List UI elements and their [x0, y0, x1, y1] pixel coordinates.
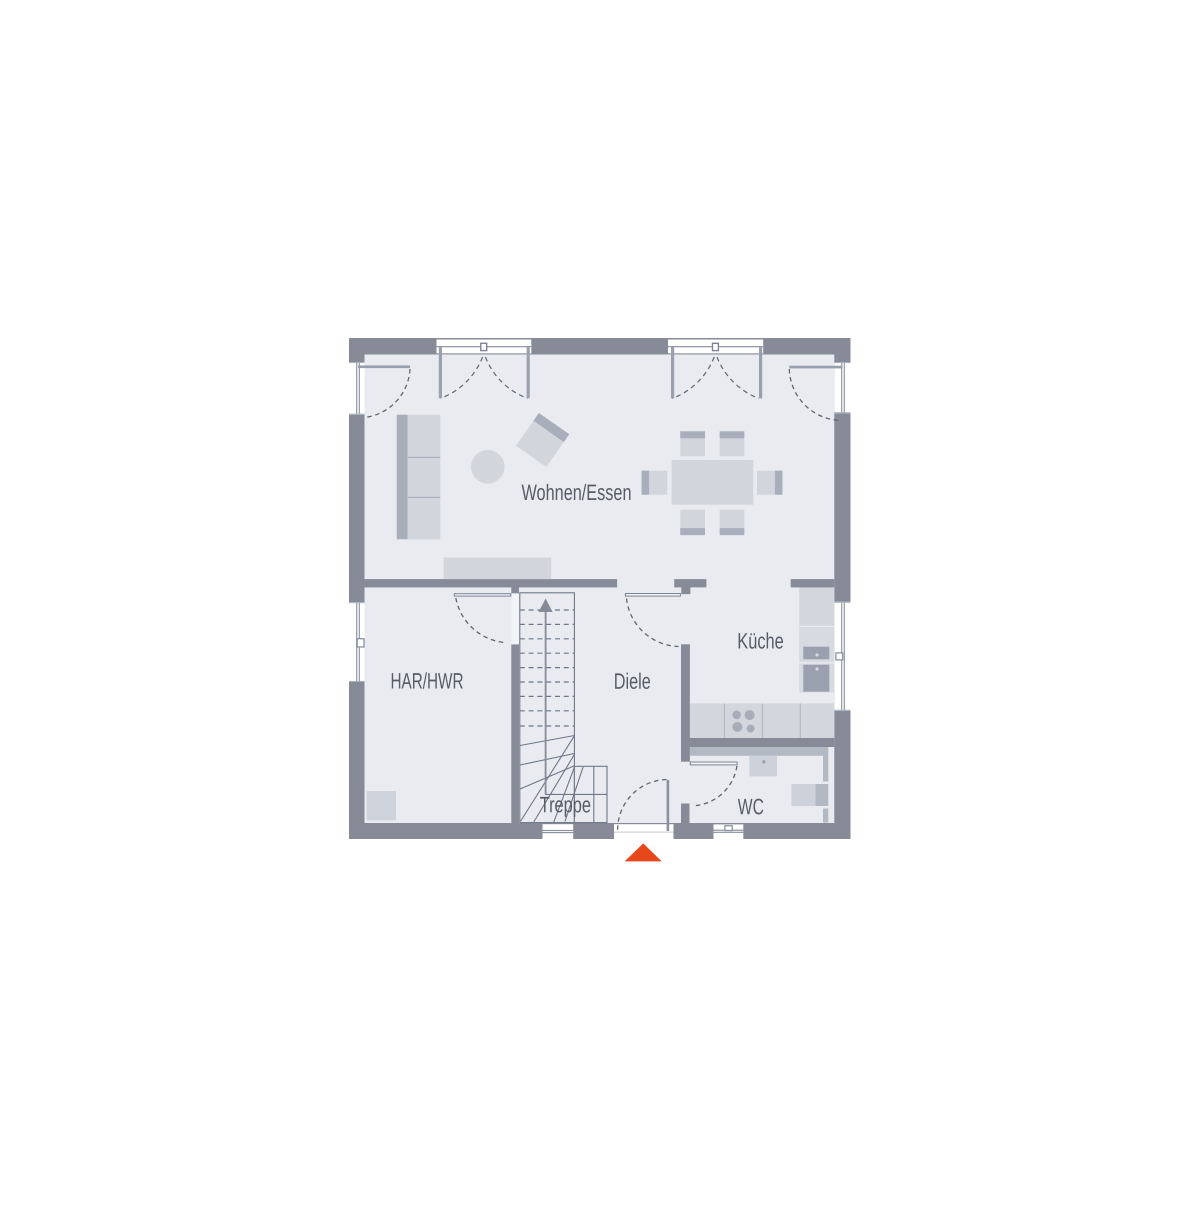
svg-text:Küche: Küche — [737, 629, 784, 654]
svg-text:HAR/HWR: HAR/HWR — [390, 669, 463, 694]
svg-text:Treppe: Treppe — [540, 792, 591, 817]
svg-text:Diele: Diele — [614, 669, 651, 694]
svg-text:WC: WC — [738, 794, 764, 819]
svg-text:Wohnen/Essen: Wohnen/Essen — [521, 480, 631, 505]
